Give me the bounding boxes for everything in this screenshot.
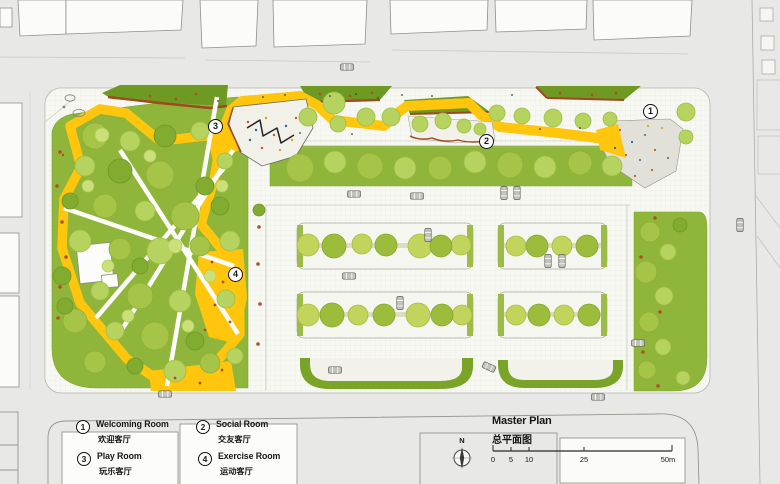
plan-marker-4-label: 4	[233, 270, 238, 279]
plan-marker-social[interactable]: 2	[479, 134, 494, 149]
legend-num-4: 4	[198, 452, 212, 466]
scale-tick-25: 25	[580, 455, 588, 464]
page-title-zh: 总平面图	[492, 431, 532, 446]
legend-num-2: 2	[196, 420, 210, 434]
scale-tick-0: 0	[491, 455, 495, 464]
scale-tick-10: 10	[525, 455, 533, 464]
page-title: Master Plan	[492, 415, 552, 427]
road-edge-lines-top	[0, 50, 688, 62]
plan-marker-exercise[interactable]: 4	[228, 267, 243, 282]
site-plan-drawing	[0, 0, 780, 484]
master-plan-canvas: 1 2 3 4 1 Welcoming Room 欢迎客厅 2 Social R…	[0, 0, 780, 484]
legend-num-1: 1	[76, 420, 90, 434]
legend-label-exercise-en: Exercise Room	[218, 451, 280, 461]
legend-label-welcoming-zh: 欢迎客厅	[98, 433, 131, 445]
plan-marker-welcoming[interactable]: 1	[643, 104, 658, 119]
scale-tick-50m: 50m	[661, 455, 676, 464]
scale-tick-5: 5	[509, 455, 513, 464]
legend-label-exercise-zh: 运动客厅	[220, 465, 253, 477]
context-buildings-top	[0, 0, 692, 48]
legend-label-welcoming-en: Welcoming Room	[96, 419, 169, 429]
legend-label-social-zh: 交友客厅	[218, 433, 251, 445]
north-arrow	[452, 447, 472, 469]
plan-marker-1-label: 1	[648, 107, 653, 116]
legend-label-social-en: Social Room	[216, 419, 268, 429]
context-buildings-left	[0, 103, 22, 387]
legend-label-play-en: Play Room	[97, 451, 142, 461]
legend-label-play-zh: 玩乐客厅	[99, 465, 132, 477]
plan-marker-2-label: 2	[484, 137, 489, 146]
bottom-planting-beds	[300, 358, 623, 389]
plan-marker-3-label: 3	[213, 122, 218, 131]
legend-num-3: 3	[77, 452, 91, 466]
context-right	[752, 0, 780, 484]
plan-marker-play[interactable]: 3	[208, 119, 223, 134]
north-label: N	[454, 436, 470, 445]
